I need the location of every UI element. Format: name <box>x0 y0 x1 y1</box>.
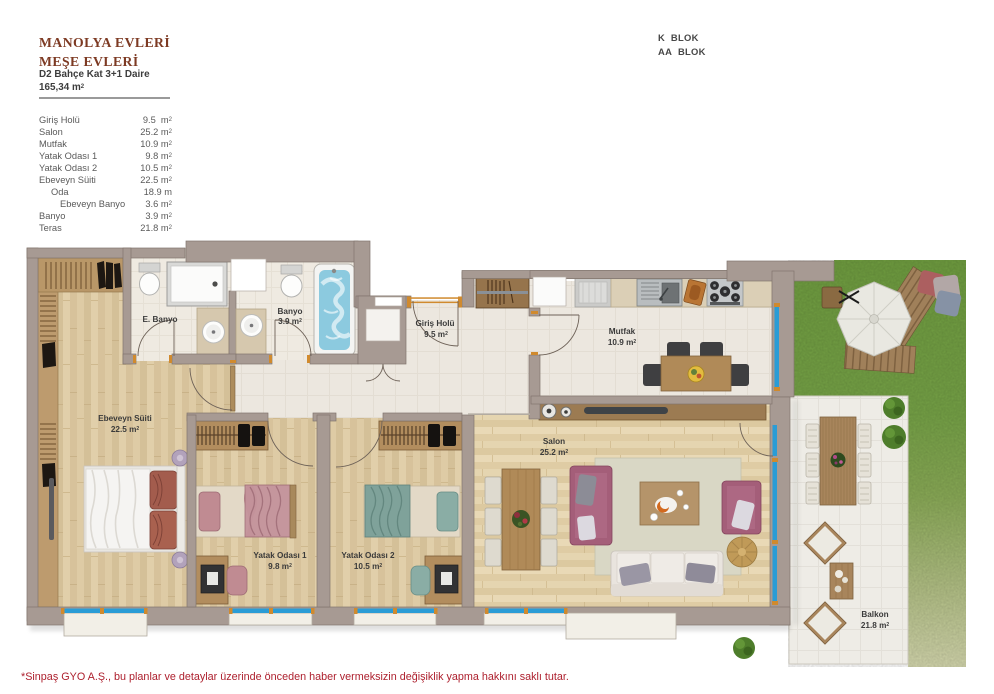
svg-text:Banyo: Banyo <box>277 307 302 316</box>
svg-text:E. Banyo: E. Banyo <box>142 315 177 324</box>
svg-text:10.9 m2: 10.9 m2 <box>608 338 637 347</box>
svg-text:Yatak Odası 1: Yatak Odası 1 <box>253 551 307 560</box>
svg-text:3.9 m2: 3.9 m2 <box>278 317 302 326</box>
svg-text:9.5 m2: 9.5 m2 <box>424 330 448 339</box>
svg-text:25.2 m2: 25.2 m2 <box>540 448 569 457</box>
svg-text:10.5 m2: 10.5 m2 <box>354 562 383 571</box>
svg-text:Salon: Salon <box>543 437 565 446</box>
svg-text:Mutfak: Mutfak <box>609 327 636 336</box>
svg-text:Ebeveyn Süiti: Ebeveyn Süiti <box>98 414 152 423</box>
svg-text:Yatak Odası 2: Yatak Odası 2 <box>341 551 395 560</box>
svg-text:21.8 m2: 21.8 m2 <box>861 621 890 630</box>
svg-text:9.8 m2: 9.8 m2 <box>268 562 292 571</box>
svg-text:Giriş Holü: Giriş Holü <box>415 319 454 328</box>
svg-text:Balkon: Balkon <box>861 610 888 619</box>
svg-text:22.5 m2: 22.5 m2 <box>111 425 140 434</box>
